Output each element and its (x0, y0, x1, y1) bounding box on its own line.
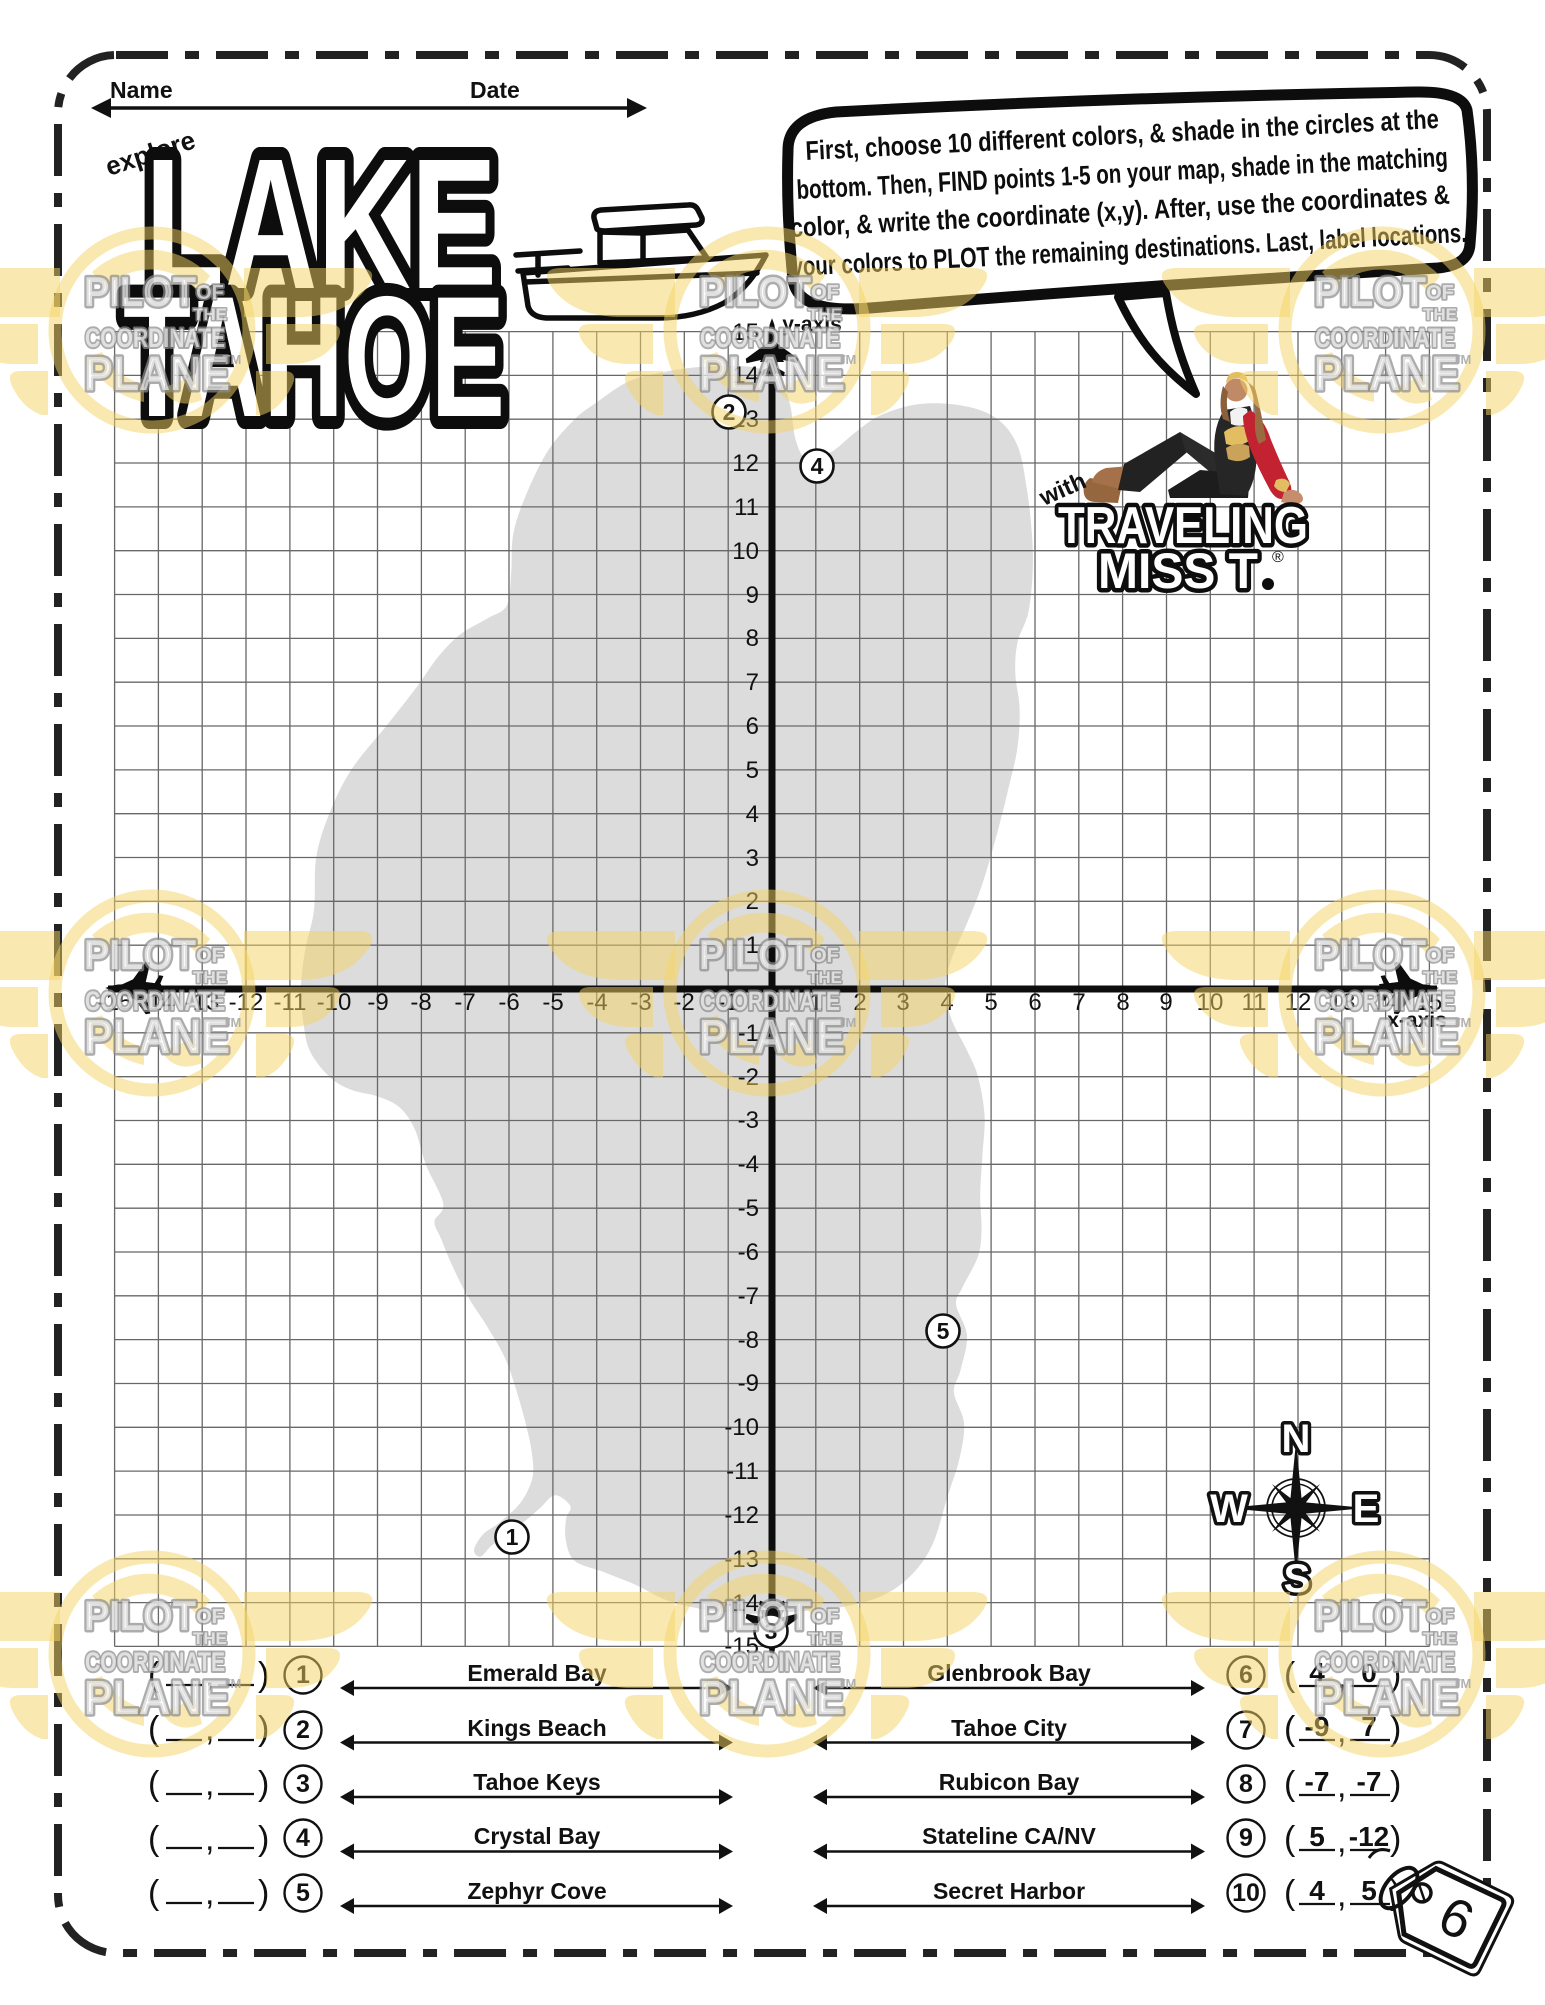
svg-text:1: 1 (506, 1524, 519, 1550)
svg-text:-6: -6 (498, 989, 519, 1016)
svg-text:Tahoe Keys: Tahoe Keys (473, 1769, 600, 1795)
svg-text:-8: -8 (738, 1327, 759, 1354)
svg-text:-12: -12 (724, 1502, 759, 1529)
svg-text:(: ( (1284, 1710, 1296, 1748)
svg-text:9: 9 (1159, 989, 1172, 1016)
svg-text:Date: Date (470, 77, 520, 103)
svg-text:8: 8 (1116, 989, 1129, 1016)
svg-text:,: , (205, 1874, 214, 1912)
svg-text:4: 4 (296, 1824, 310, 1852)
svg-text:Tahoe City: Tahoe City (951, 1715, 1067, 1741)
svg-text:11: 11 (734, 494, 759, 521)
svg-text:3: 3 (746, 845, 759, 872)
svg-text:-9: -9 (738, 1370, 759, 1397)
svg-text:,: , (1337, 1767, 1346, 1805)
svg-text:Name: Name (110, 77, 173, 103)
svg-text:-11: -11 (726, 1458, 759, 1485)
svg-text:5: 5 (296, 1879, 310, 1907)
svg-text:Crystal Bay: Crystal Bay (474, 1823, 601, 1849)
svg-text:-10: -10 (724, 1414, 759, 1441)
svg-text:-9: -9 (367, 989, 388, 1016)
svg-text:8: 8 (1239, 1770, 1253, 1798)
svg-text:9: 9 (746, 582, 759, 609)
svg-text:): ) (1390, 1820, 1401, 1858)
svg-text:(: ( (148, 1820, 160, 1858)
svg-text:-7: -7 (1305, 1766, 1330, 1797)
svg-text:12: 12 (732, 450, 759, 477)
svg-text:Stateline CA/NV: Stateline CA/NV (922, 1823, 1096, 1849)
svg-text:,: , (205, 1820, 214, 1858)
svg-text:-6: -6 (738, 1239, 759, 1266)
svg-text:4: 4 (1309, 1875, 1325, 1906)
svg-text:,: , (205, 1765, 214, 1803)
svg-text:-7: -7 (454, 989, 475, 1016)
svg-text:-7: -7 (738, 1283, 759, 1310)
svg-text:7: 7 (746, 669, 759, 696)
svg-text:,: , (1337, 1876, 1346, 1914)
svg-text:Kings Beach: Kings Beach (467, 1715, 606, 1741)
svg-text:-5: -5 (542, 989, 563, 1016)
svg-text:): ) (258, 1820, 269, 1858)
svg-text:-8: -8 (410, 989, 431, 1016)
svg-text:5: 5 (984, 989, 997, 1016)
svg-text:N: N (1282, 1417, 1311, 1461)
svg-text:-7: -7 (1357, 1766, 1382, 1797)
svg-text:): ) (258, 1874, 269, 1912)
svg-text:5: 5 (1309, 1821, 1325, 1852)
svg-text:-12: -12 (1349, 1821, 1389, 1852)
svg-text:4: 4 (746, 801, 759, 828)
svg-text:Zephyr Cove: Zephyr Cove (467, 1878, 606, 1904)
svg-text:Secret Harbor: Secret Harbor (933, 1878, 1085, 1904)
svg-text:6: 6 (1028, 989, 1041, 1016)
svg-text:): ) (1390, 1765, 1401, 1803)
svg-text:MISS T: MISS T (1098, 543, 1258, 599)
svg-text:-3: -3 (738, 1107, 759, 1134)
svg-text:): ) (258, 1765, 269, 1803)
svg-text:-5: -5 (738, 1195, 759, 1222)
svg-text:3: 3 (296, 1770, 310, 1798)
svg-text:5: 5 (746, 757, 759, 784)
svg-text:4: 4 (811, 453, 824, 479)
svg-text:9: 9 (1239, 1824, 1253, 1852)
svg-text:E: E (1353, 1487, 1380, 1531)
svg-text:(: ( (148, 1765, 160, 1803)
svg-text:8: 8 (746, 625, 759, 652)
svg-text:®: ® (1272, 549, 1284, 566)
svg-text:10: 10 (1232, 1879, 1260, 1907)
svg-text:Rubicon Bay: Rubicon Bay (939, 1769, 1080, 1795)
svg-text:6: 6 (746, 713, 759, 740)
svg-text:(: ( (148, 1874, 160, 1912)
svg-text:5: 5 (1361, 1875, 1377, 1906)
svg-text:-4: -4 (738, 1151, 759, 1178)
svg-text:(: ( (1284, 1820, 1296, 1858)
svg-text:(: ( (1284, 1765, 1296, 1803)
svg-text:7: 7 (1072, 989, 1085, 1016)
svg-text:W: W (1210, 1487, 1248, 1531)
svg-text:10: 10 (732, 538, 759, 565)
svg-text:(: ( (1284, 1874, 1296, 1912)
svg-text:5: 5 (937, 1318, 950, 1344)
svg-text:2: 2 (296, 1716, 310, 1744)
svg-text:,: , (1337, 1822, 1346, 1860)
